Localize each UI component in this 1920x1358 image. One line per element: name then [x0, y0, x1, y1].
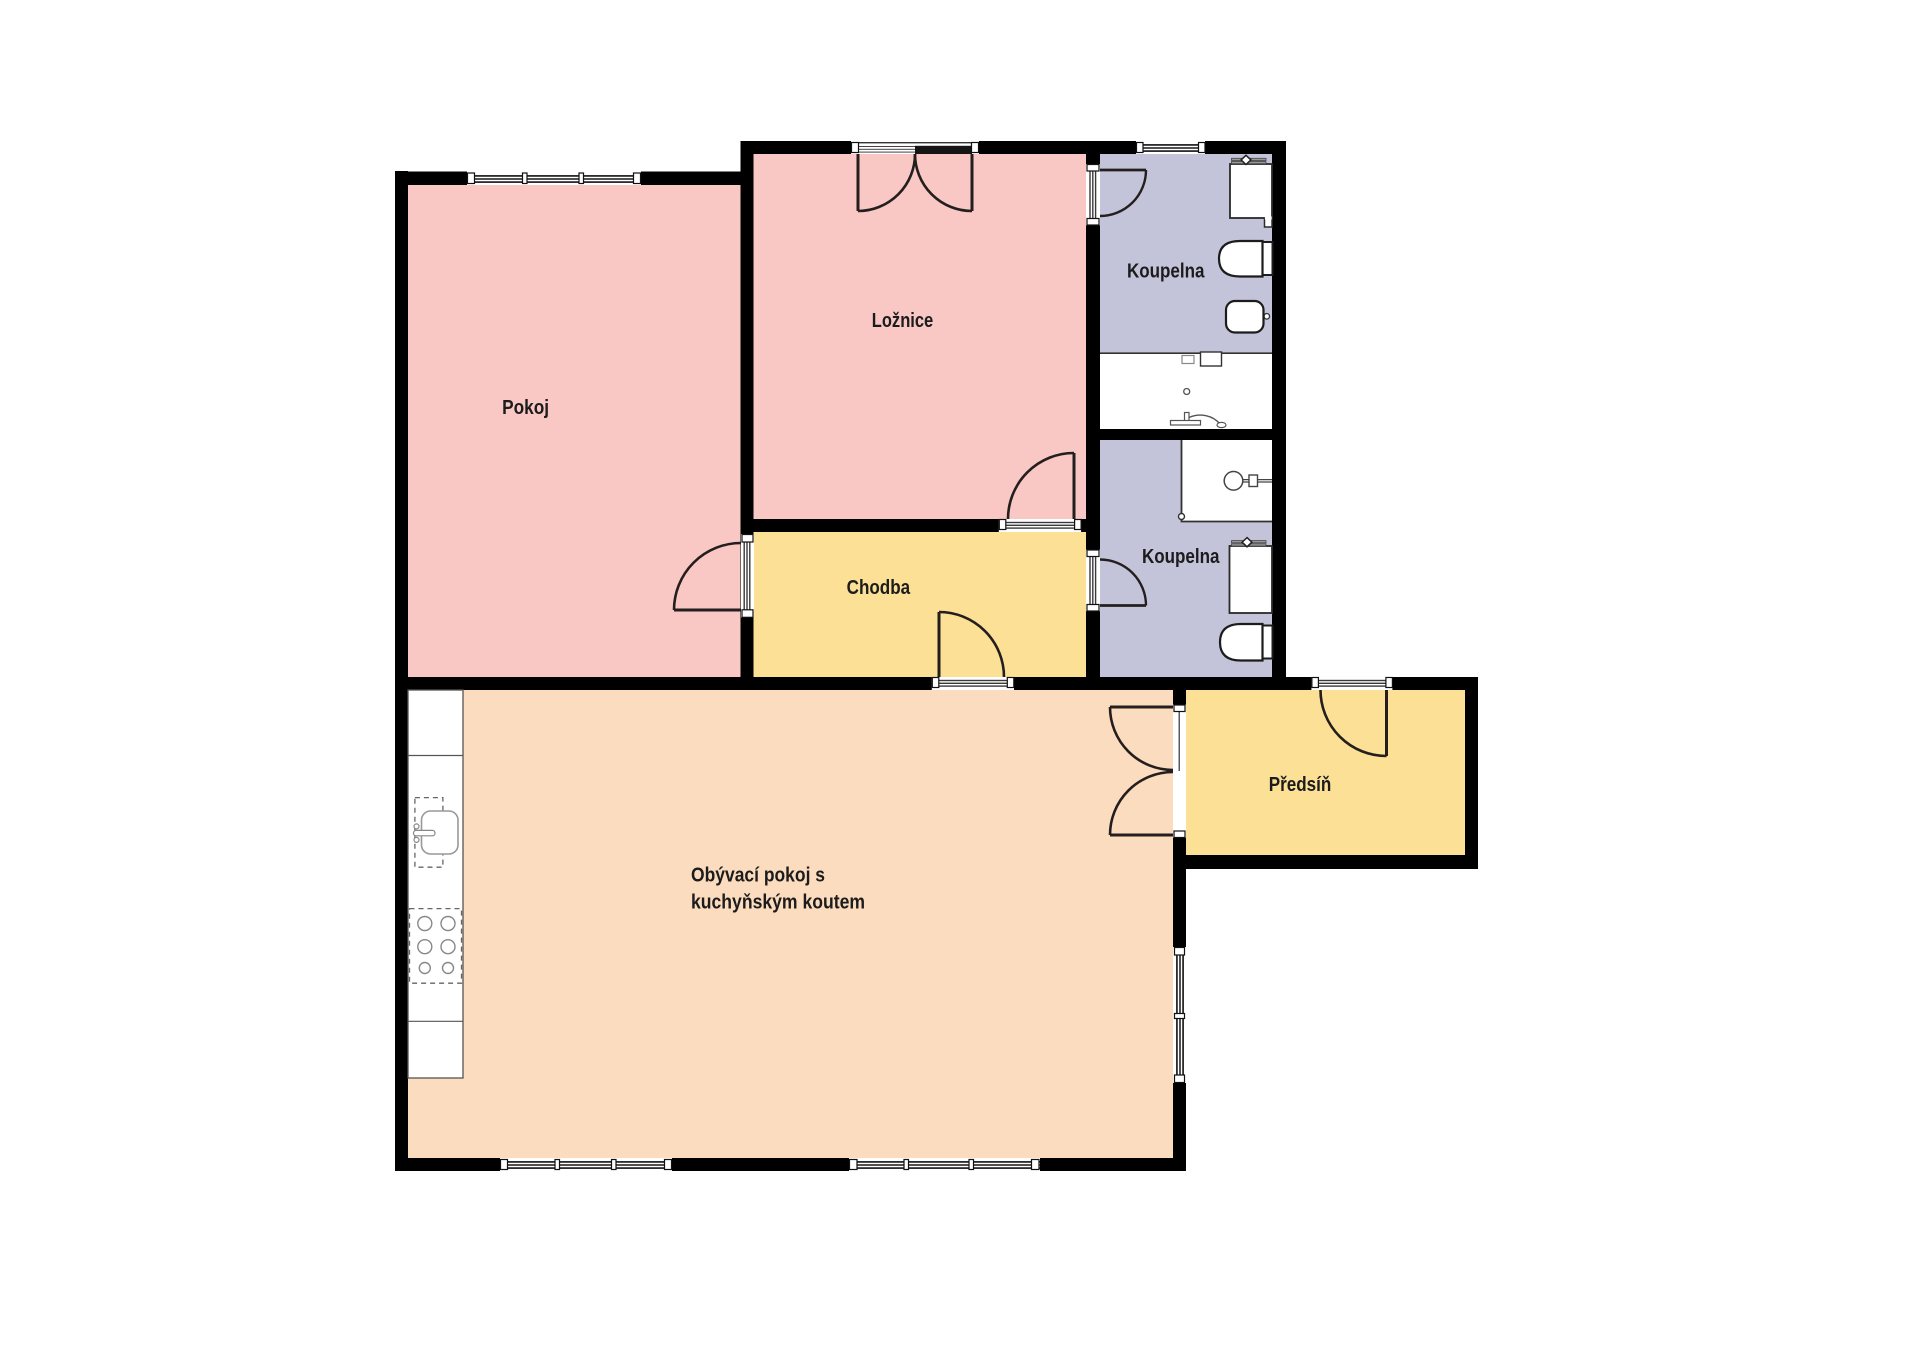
- svg-text:Koupelna: Koupelna: [1142, 546, 1220, 568]
- svg-text:kuchyňským koutem: kuchyňským koutem: [691, 892, 865, 914]
- svg-text:Ložnice: Ložnice: [872, 310, 934, 332]
- svg-text:Obývací pokoj s: Obývací pokoj s: [691, 865, 825, 887]
- svg-text:Chodba: Chodba: [847, 577, 911, 599]
- svg-text:Koupelna: Koupelna: [1127, 261, 1205, 283]
- svg-text:Pokoj: Pokoj: [502, 397, 549, 419]
- svg-text:Předsíň: Předsíň: [1269, 774, 1332, 796]
